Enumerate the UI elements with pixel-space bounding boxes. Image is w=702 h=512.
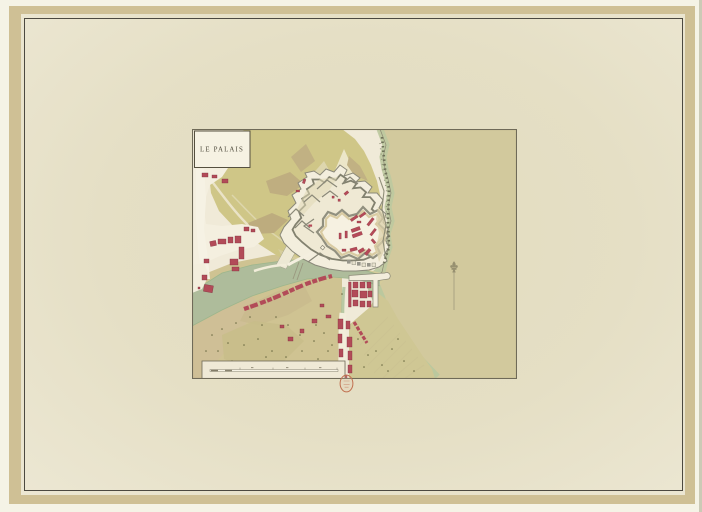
svg-text:LE PALAIS: LE PALAIS (200, 146, 244, 154)
